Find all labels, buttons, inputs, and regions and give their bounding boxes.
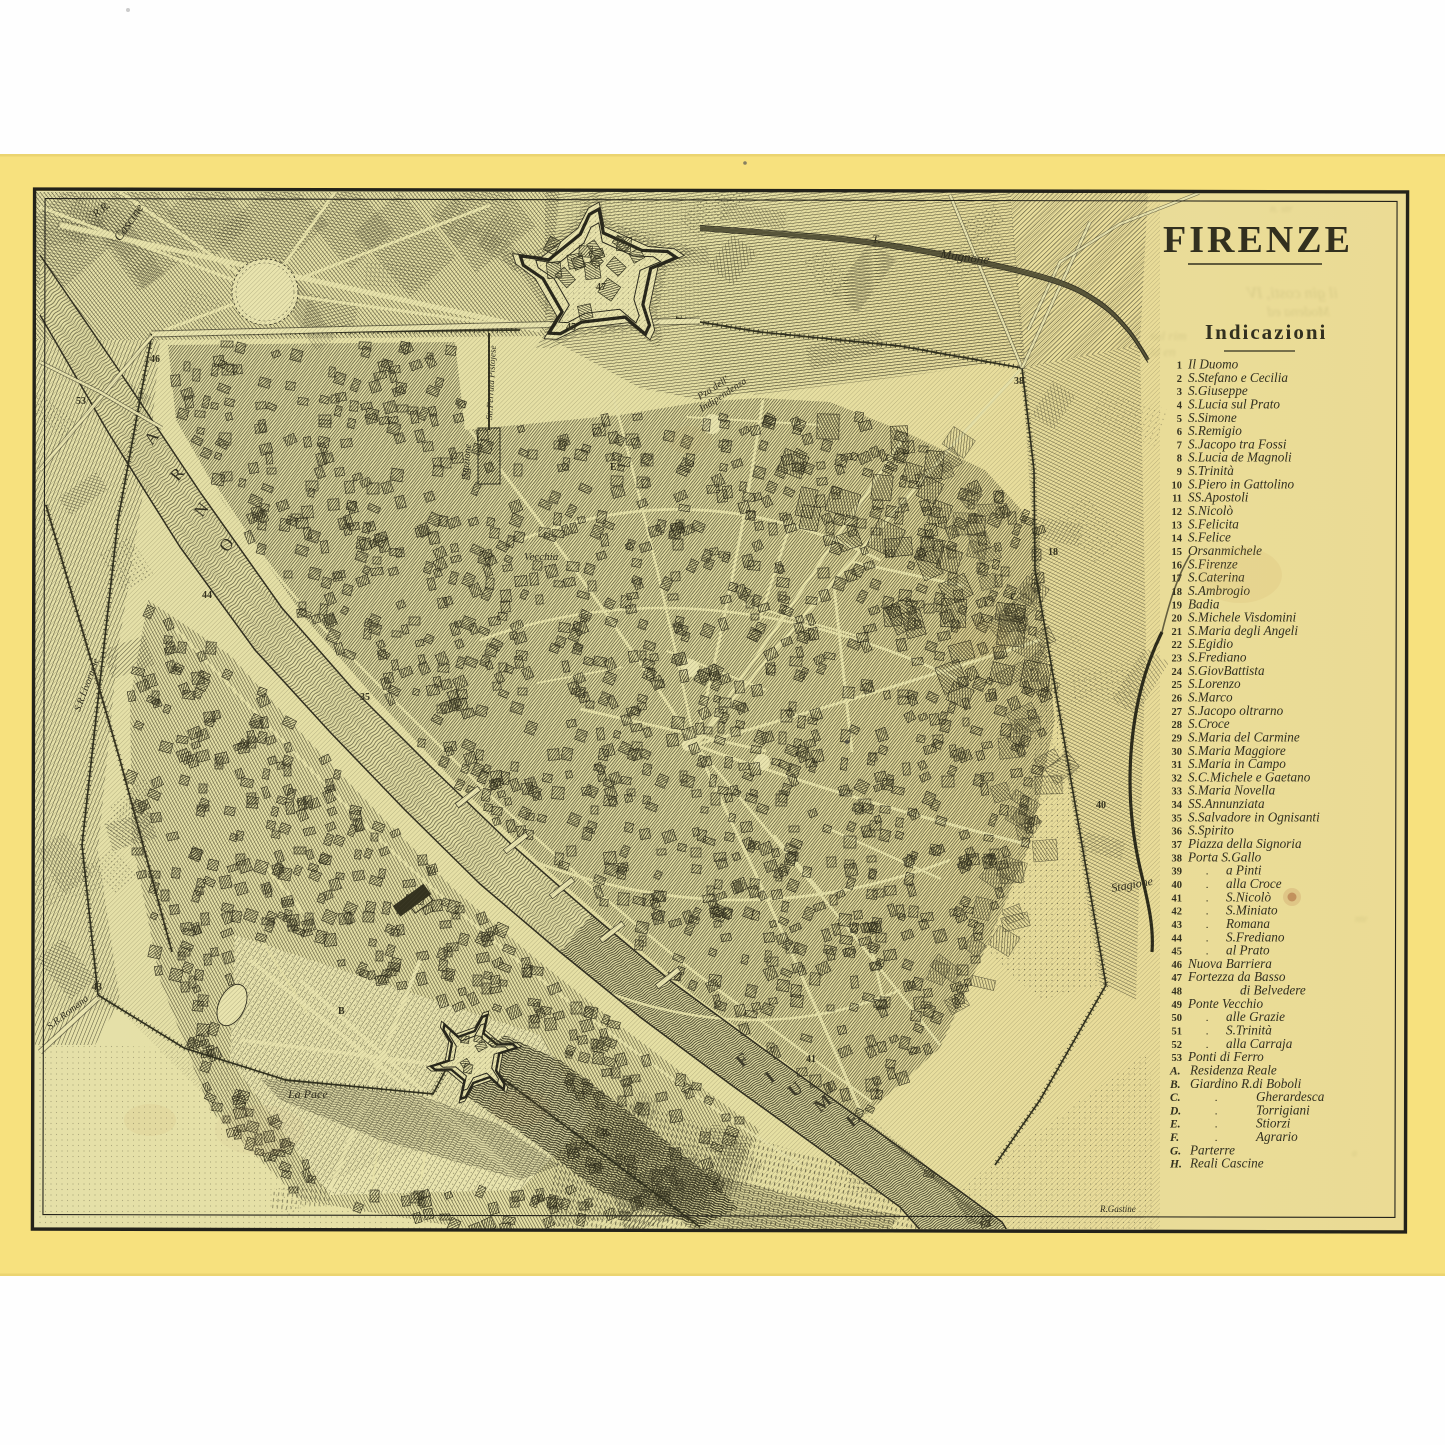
svg-text:8: 8 <box>1177 454 1182 465</box>
svg-text:9: 9 <box>1177 467 1182 478</box>
svg-text:Reali Cascine: Reali Cascine <box>1189 1156 1264 1171</box>
svg-text:il gin costi, IV: il gin costi, IV <box>1245 285 1338 302</box>
svg-text:A.: A. <box>1169 1066 1181 1078</box>
svg-text:2: 2 <box>1177 374 1182 385</box>
svg-text:sul rim: sul rim <box>1150 328 1186 343</box>
svg-text:a: a <box>1352 1148 1357 1159</box>
svg-text:30: 30 <box>1172 747 1183 758</box>
svg-text:50: 50 <box>1172 1013 1183 1024</box>
svg-text:46: 46 <box>1172 960 1183 971</box>
svg-text:38: 38 <box>1014 376 1024 387</box>
svg-text:.: . <box>1206 866 1209 878</box>
svg-text:22: 22 <box>1172 640 1183 651</box>
svg-text:43: 43 <box>92 982 102 993</box>
svg-text:.: . <box>1215 1092 1218 1104</box>
svg-text:47: 47 <box>1172 973 1183 984</box>
svg-text:B: B <box>338 1006 345 1017</box>
svg-text:.: . <box>1206 892 1209 904</box>
svg-text:37: 37 <box>1172 840 1183 851</box>
svg-text:36: 36 <box>600 1128 610 1139</box>
svg-text:53: 53 <box>76 396 86 407</box>
svg-text:53: 53 <box>1172 1053 1183 1064</box>
svg-text:nte: nte <box>1355 914 1368 925</box>
svg-text:ld en: ld en <box>1150 344 1176 359</box>
svg-text:.: . <box>1206 1012 1209 1024</box>
svg-text:14: 14 <box>1172 534 1183 545</box>
svg-text:17: 17 <box>1172 574 1183 585</box>
svg-text:48: 48 <box>1172 987 1183 998</box>
svg-text:FIRENZE: FIRENZE <box>1163 219 1353 261</box>
svg-text:7: 7 <box>1177 440 1182 451</box>
svg-text:4: 4 <box>1177 401 1183 412</box>
svg-text:D.: D. <box>1169 1105 1181 1117</box>
svg-text:T.: T. <box>872 232 881 246</box>
svg-text:19: 19 <box>1172 600 1183 611</box>
svg-text:31: 31 <box>1172 760 1183 771</box>
svg-text:R.Gastine: R.Gastine <box>1099 1204 1136 1214</box>
svg-text:Vecchia: Vecchia <box>524 551 559 563</box>
svg-text:29: 29 <box>1172 734 1183 745</box>
svg-text:n. str: n. str <box>1270 203 1293 215</box>
svg-text:.: . <box>1206 879 1209 891</box>
svg-text:.: . <box>1206 1026 1209 1038</box>
svg-text:1: 1 <box>1177 361 1182 372</box>
svg-text:34: 34 <box>1172 800 1183 811</box>
svg-text:25: 25 <box>1172 680 1183 691</box>
svg-text:A: A <box>396 906 404 917</box>
svg-text:E: E <box>610 462 617 473</box>
svg-text:35: 35 <box>360 692 370 703</box>
svg-text:.: . <box>1206 919 1209 931</box>
svg-text:13: 13 <box>1172 520 1183 531</box>
svg-text:B.: B. <box>1169 1079 1181 1091</box>
svg-text:32: 32 <box>1172 773 1183 784</box>
svg-text:47: 47 <box>596 282 606 293</box>
svg-text:H.: H. <box>1169 1159 1182 1171</box>
svg-text:10: 10 <box>1172 480 1183 491</box>
svg-text:41: 41 <box>1172 893 1183 904</box>
svg-text:.: . <box>1206 932 1209 944</box>
svg-text:44: 44 <box>1172 933 1183 944</box>
svg-text:28: 28 <box>1172 720 1183 731</box>
svg-text:.: . <box>1215 1119 1218 1131</box>
svg-text:18: 18 <box>1048 547 1058 558</box>
svg-text:45: 45 <box>1172 947 1183 958</box>
svg-text:27: 27 <box>1172 707 1183 718</box>
svg-text:46: 46 <box>150 354 160 365</box>
svg-text:16: 16 <box>1172 560 1183 571</box>
svg-text:38: 38 <box>1172 853 1183 864</box>
svg-text:39: 39 <box>1172 867 1183 878</box>
svg-text:20: 20 <box>1172 614 1183 625</box>
svg-text:C.: C. <box>1170 1092 1181 1104</box>
svg-text:La Pace: La Pace <box>287 1087 328 1101</box>
svg-text:43: 43 <box>1172 920 1183 931</box>
svg-text:42: 42 <box>1172 907 1183 918</box>
svg-text:40: 40 <box>1096 800 1106 811</box>
svg-text:5: 5 <box>1177 414 1182 425</box>
svg-text:44: 44 <box>202 590 212 601</box>
svg-text:26: 26 <box>1172 694 1183 705</box>
svg-text:Agrario: Agrario <box>1255 1129 1298 1144</box>
svg-text:15: 15 <box>1172 547 1183 558</box>
svg-text:21: 21 <box>1172 627 1183 638</box>
svg-text:24: 24 <box>1172 667 1183 678</box>
svg-text:36: 36 <box>1172 827 1183 838</box>
svg-text:3: 3 <box>1177 387 1182 398</box>
svg-text:11: 11 <box>1172 494 1182 505</box>
svg-text:35: 35 <box>1172 813 1183 824</box>
svg-text:18: 18 <box>1172 587 1183 598</box>
svg-text:F.: F. <box>1169 1132 1179 1144</box>
svg-text:49: 49 <box>1172 1000 1183 1011</box>
svg-text:52: 52 <box>1172 1040 1183 1051</box>
svg-text:G.: G. <box>1170 1145 1181 1157</box>
svg-text:40: 40 <box>1172 880 1183 891</box>
svg-text:Indicazioni: Indicazioni <box>1205 320 1327 344</box>
svg-text:6: 6 <box>1177 427 1182 438</box>
svg-text:.: . <box>1206 906 1209 918</box>
svg-text:12: 12 <box>1172 507 1183 518</box>
svg-text:C: C <box>1010 592 1017 603</box>
svg-text:.: . <box>1215 1105 1218 1117</box>
svg-text:45: 45 <box>566 322 576 333</box>
svg-text:41: 41 <box>806 1054 816 1065</box>
svg-text:E.: E. <box>1169 1119 1181 1131</box>
svg-text:51: 51 <box>1172 1027 1183 1038</box>
svg-text:Modena ed: Modena ed <box>1266 305 1331 320</box>
svg-text:23: 23 <box>1172 654 1183 665</box>
svg-text:33: 33 <box>1172 787 1183 798</box>
